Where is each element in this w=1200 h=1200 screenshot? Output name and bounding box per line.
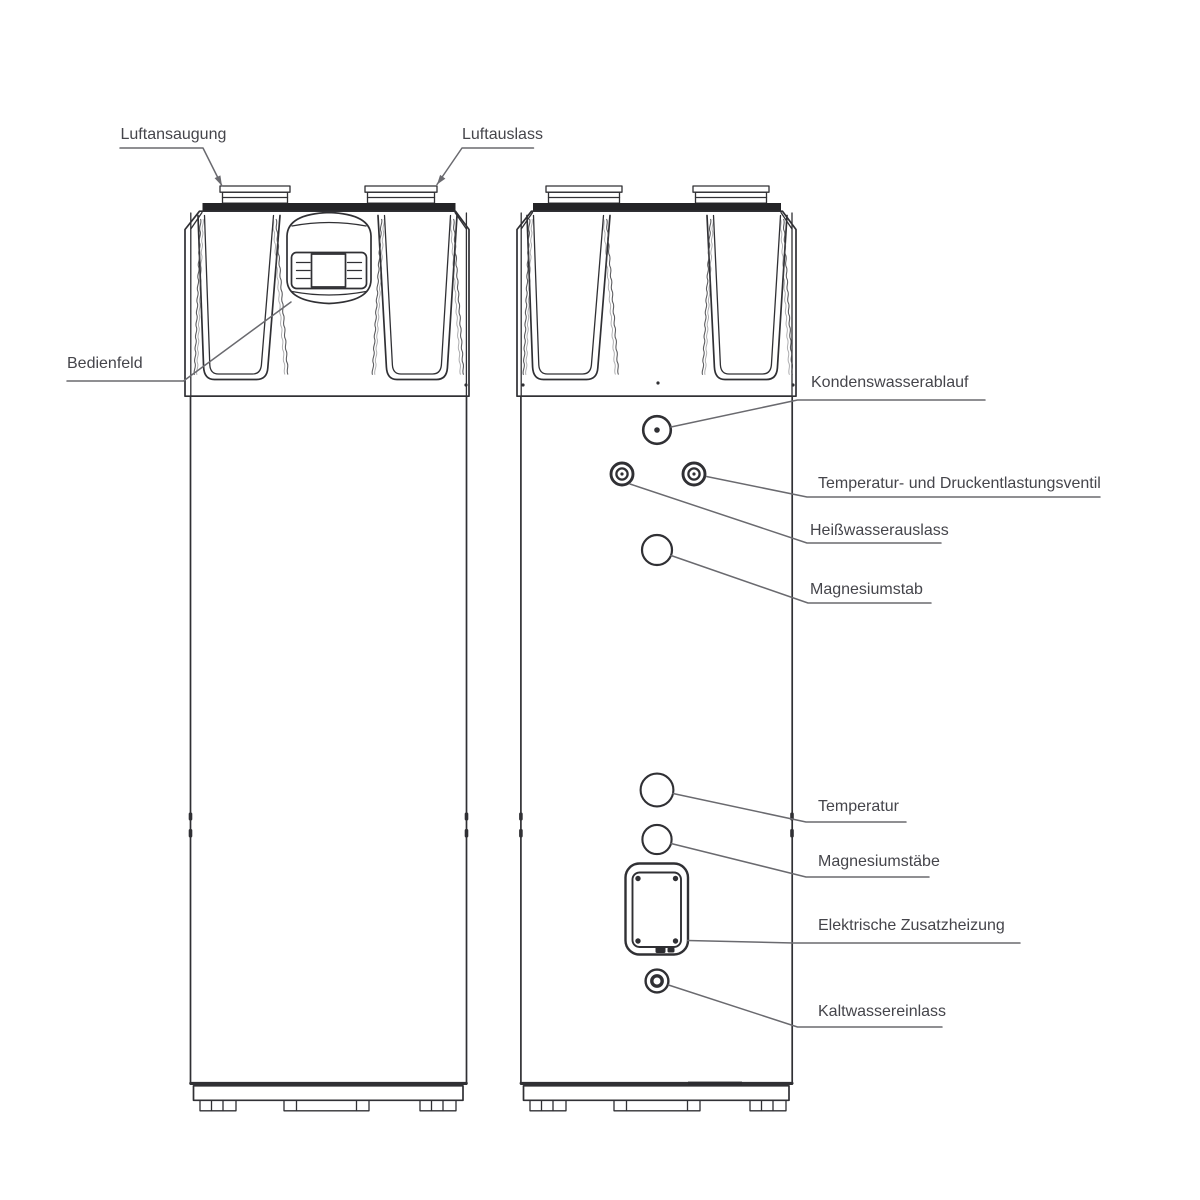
arrowhead: [215, 175, 222, 186]
label-luftauslass: Luftauslass: [462, 126, 543, 143]
air-collar-right: [693, 186, 769, 203]
base-plate: [524, 1086, 790, 1101]
label-temperatur: Temperatur: [818, 798, 900, 815]
feet: [200, 1100, 456, 1111]
tp-relief-valve-port-left: [611, 463, 633, 485]
label-magnesiumstab: Magnesiumstab: [810, 581, 923, 598]
leader-kondenswasserablauf: [671, 400, 985, 427]
label-elektrische-zusatzheizung: Elektrische Zusatzheizung: [818, 917, 1005, 934]
feet: [530, 1100, 786, 1111]
condensate-drain-port: [643, 416, 671, 444]
control-panel: [287, 213, 371, 304]
unit-front-view: [185, 186, 469, 1111]
label-kaltwassereinlass: Kaltwassereinlass: [818, 1003, 946, 1020]
top-vent-band: [533, 203, 781, 211]
magnesium-rod-port: [642, 535, 672, 565]
air-collar-left: [546, 186, 622, 203]
edge-marks: [189, 813, 469, 838]
label-luftansaugung: Luftansaugung: [121, 126, 227, 143]
air-outlet-collar: [365, 186, 437, 203]
leader-zusatzheizung: [688, 941, 1021, 944]
unit-rear-view: [517, 186, 796, 1111]
electric-heater-flange: [626, 864, 689, 955]
display-screen: [312, 254, 346, 287]
heat-pump-diagram: Luftansaugung Luftauslass Bedienfeld Kon…: [0, 0, 1200, 1200]
label-bedienfeld: Bedienfeld: [67, 355, 143, 372]
label-magnesiumstaebe: Magnesiumstäbe: [818, 853, 940, 870]
temperature-sensor-port: [641, 774, 674, 807]
tank-body-rear: [521, 396, 792, 1084]
label-kondenswasserablauf: Kondenswasserablauf: [811, 374, 969, 391]
arrowhead: [437, 175, 445, 185]
cold-water-inlet-port: [646, 970, 669, 993]
tp-relief-valve-port-right: [683, 463, 705, 485]
label-heisswasserauslass: Heißwasserauslass: [810, 522, 949, 539]
tank-body-front: [191, 396, 467, 1084]
leader-luftansaugung: [120, 148, 222, 186]
label-temperatur-druckventil: Temperatur- und Druckentlastungsventil: [818, 475, 1101, 492]
magnesium-rods-port: [642, 825, 671, 854]
base-plate: [194, 1086, 464, 1101]
top-vent-band: [203, 203, 456, 211]
leader-luftauslass: [437, 148, 534, 185]
diagram-canvas: Luftansaugung Luftauslass Bedienfeld Kon…: [0, 0, 1200, 1200]
air-intake-collar: [220, 186, 290, 203]
head-housing: [517, 211, 796, 396]
